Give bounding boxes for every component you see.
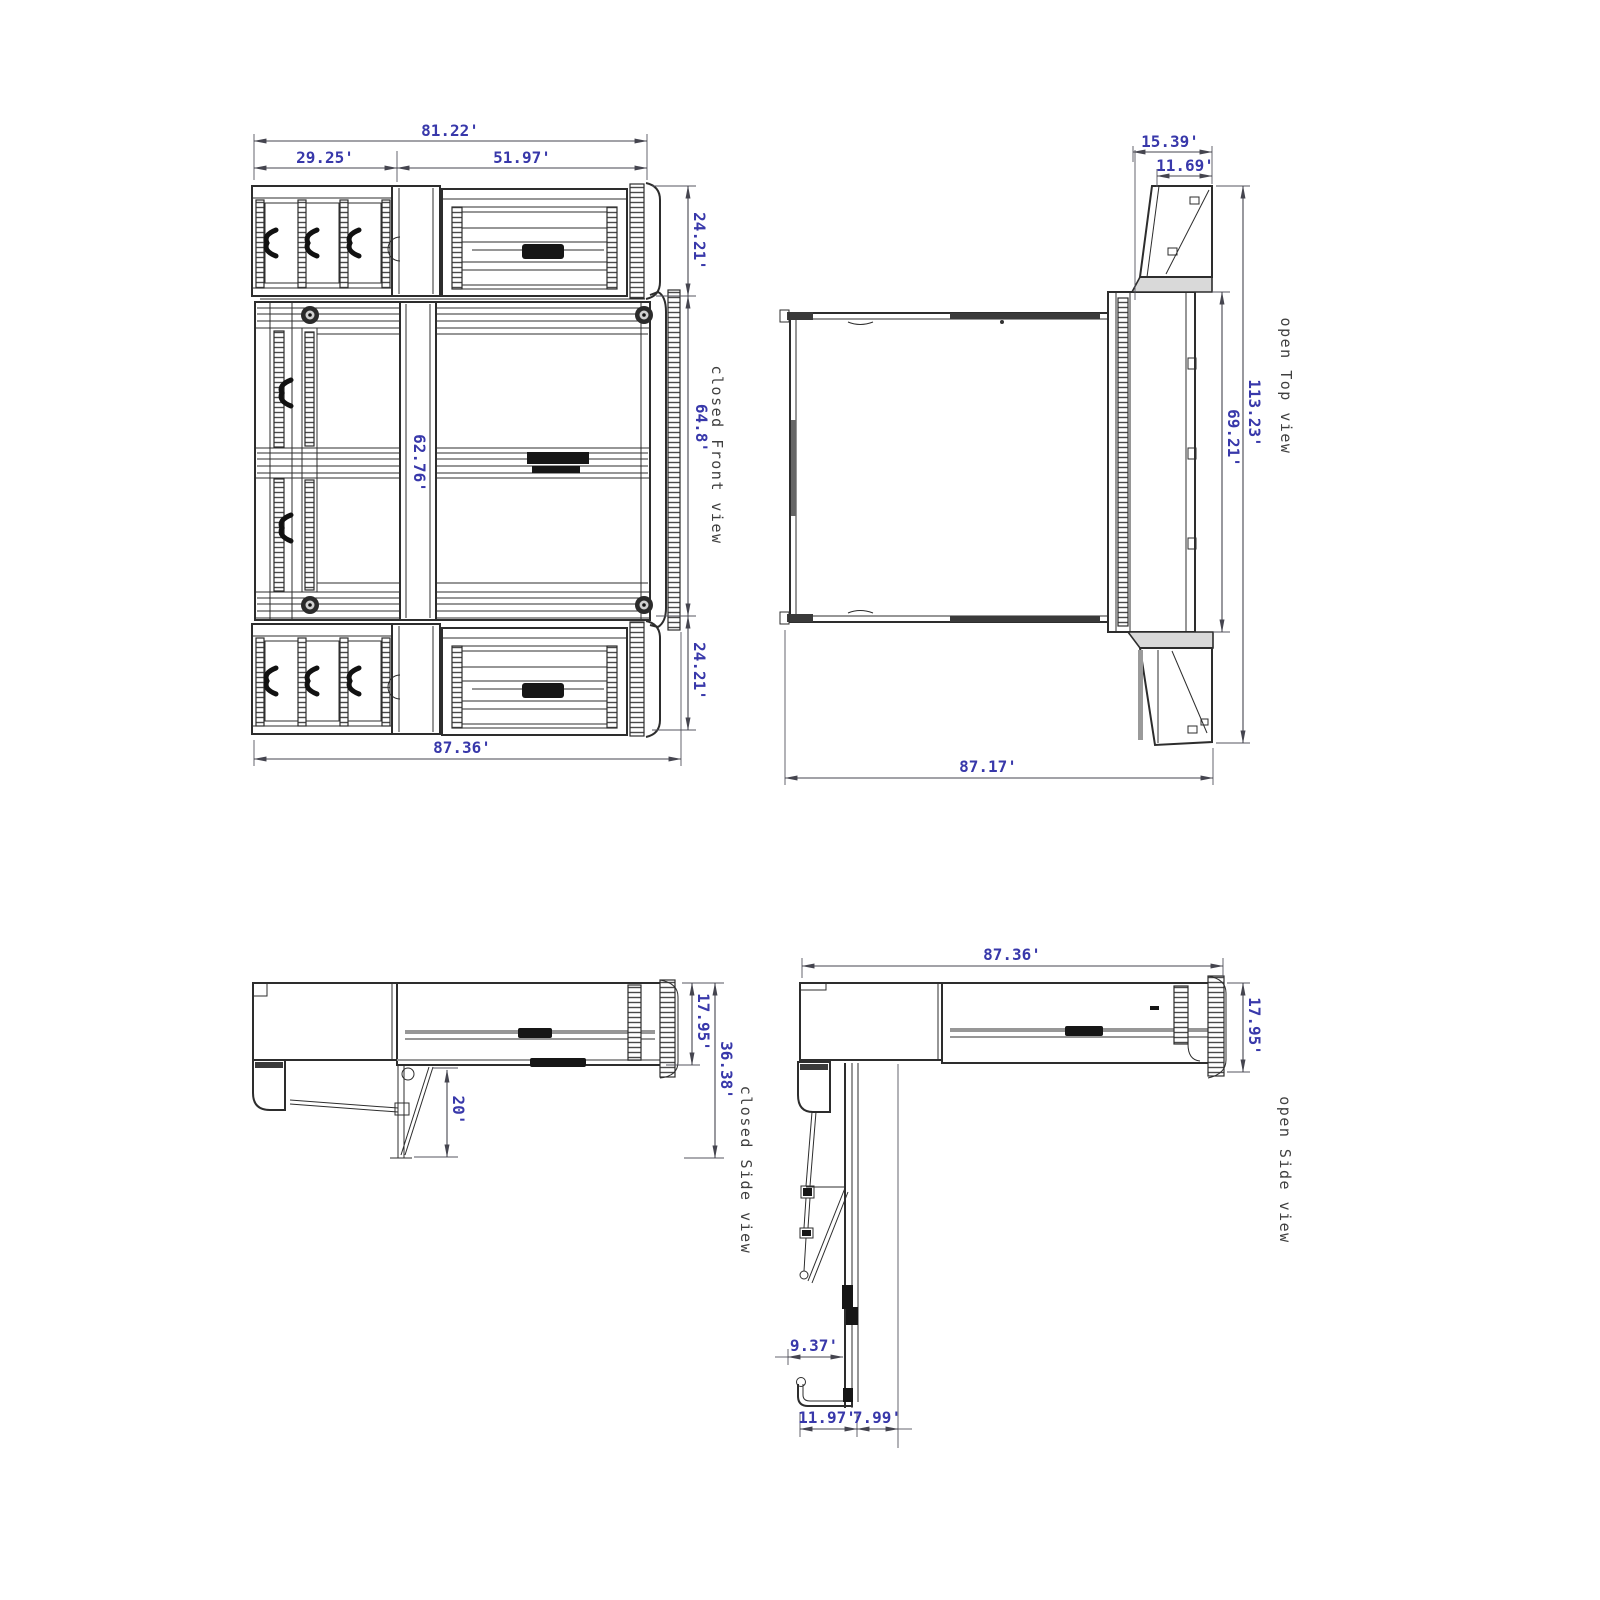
dim-door-swing-depth: 15.39' bbox=[1141, 132, 1199, 151]
blueprint-canvas: 62.76' bbox=[0, 0, 1600, 1600]
open-door-bottom bbox=[1138, 648, 1212, 745]
closed-side-view-label: closed Side view bbox=[737, 1086, 755, 1255]
headboard-edge bbox=[660, 980, 675, 1077]
drawer-handle bbox=[522, 683, 564, 698]
headboard-edge bbox=[630, 184, 644, 298]
drawer-handle bbox=[522, 244, 564, 259]
cabinet-bottom-cap bbox=[1128, 632, 1213, 648]
dim-bed-opening-depth: 69.21' bbox=[1224, 409, 1243, 467]
dim-inner-column-height: 62.76' bbox=[410, 434, 429, 492]
top-view: 15.39' 11.69' 69.21' 113.23' 87.17' open… bbox=[780, 132, 1295, 785]
dim-top-section-height: 24.21' bbox=[690, 212, 709, 270]
bolt-icon bbox=[301, 306, 319, 324]
closed-side-view: 20' 17.95' 36.38' closed Side view bbox=[253, 980, 755, 1254]
bed-foot bbox=[787, 312, 813, 320]
front-view: 62.76' bbox=[252, 121, 726, 766]
cabinet-top-cap bbox=[1132, 277, 1212, 292]
headboard-edge bbox=[1208, 976, 1224, 1076]
dim-cabinet-depth: 17.95' bbox=[694, 993, 713, 1051]
open-side-leg bbox=[797, 1062, 899, 1448]
bed-foot bbox=[787, 614, 813, 622]
bed-platform bbox=[780, 310, 1108, 624]
top-view-label: open Top view bbox=[1277, 318, 1295, 455]
door-stile bbox=[298, 200, 306, 288]
dim-overall-base-width: 87.36' bbox=[433, 738, 491, 757]
door-stile bbox=[340, 638, 348, 726]
front-bottom-section bbox=[252, 621, 660, 737]
dim-foot-offset: 9.37' bbox=[790, 1336, 838, 1355]
closed-side-body bbox=[253, 980, 678, 1078]
drawer-handle bbox=[518, 1028, 552, 1038]
dim-top-overall-width: 87.17' bbox=[959, 757, 1017, 776]
drawer-handle bbox=[530, 1058, 586, 1067]
bolt-icon bbox=[635, 306, 653, 324]
dim-leg-drop: 20' bbox=[449, 1096, 468, 1125]
dim-bottom-section-height: 24.21' bbox=[690, 642, 709, 700]
dim-foot-length: 11.97' bbox=[798, 1408, 856, 1427]
bolt-icon bbox=[301, 596, 319, 614]
dim-overall-depth: 113.23' bbox=[1245, 379, 1264, 446]
pivot-icon bbox=[800, 1271, 808, 1279]
leg-latch bbox=[842, 1285, 853, 1309]
dim-overall-width: 81.22' bbox=[421, 121, 479, 140]
open-side-view-label: open Side view bbox=[1276, 1096, 1294, 1243]
dim-overall-depth-closed: 36.38' bbox=[717, 1041, 736, 1099]
dim-cabinet-depth-open: 17.95' bbox=[1245, 997, 1264, 1055]
pivot-icon bbox=[797, 1378, 806, 1387]
leg-bracket bbox=[803, 1188, 812, 1196]
headboard-edge bbox=[668, 290, 680, 630]
door-stile bbox=[256, 638, 264, 726]
dim-overall-length-open: 87.36' bbox=[983, 945, 1041, 964]
dim-door-panel-width: 11.69' bbox=[1156, 156, 1214, 175]
bed-pull-handle bbox=[527, 452, 589, 464]
technical-drawing-page: 62.76' bbox=[0, 0, 1600, 1600]
drawer-handle bbox=[1065, 1026, 1103, 1036]
door-stile bbox=[256, 200, 264, 288]
front-view-label: closed Front view bbox=[708, 365, 726, 544]
dim-left-section-width: 29.25' bbox=[296, 148, 354, 167]
bolt-icon bbox=[635, 596, 653, 614]
cabinet-column bbox=[1108, 277, 1213, 648]
dim-foot-clearance: 7.99' bbox=[853, 1408, 901, 1427]
front-top-section bbox=[252, 183, 660, 299]
headboard-edge bbox=[628, 985, 641, 1060]
door-stile bbox=[340, 200, 348, 288]
dim-right-section-width: 51.97' bbox=[493, 148, 551, 167]
open-side-body bbox=[800, 976, 1226, 1078]
front-middle-section: 62.76' bbox=[255, 290, 680, 630]
headboard-edge bbox=[630, 622, 644, 736]
door-stile bbox=[298, 638, 306, 726]
headboard-edge bbox=[1174, 986, 1188, 1044]
open-side-view: 87.36' 17.95' 9.37' 11.97' 7.99' open Si… bbox=[775, 945, 1294, 1448]
closed-side-leg bbox=[253, 1060, 433, 1158]
leg-bracket bbox=[395, 1103, 409, 1115]
